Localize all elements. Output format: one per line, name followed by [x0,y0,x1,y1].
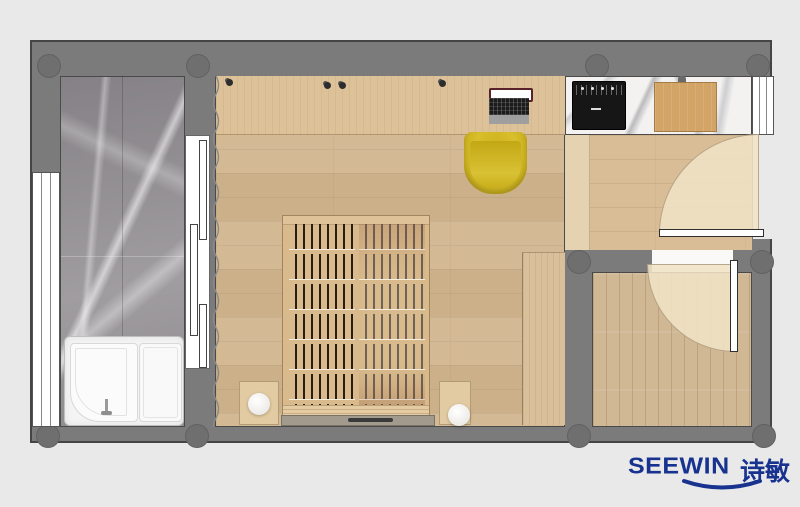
round-lamp-right [448,404,470,426]
wall-column [185,424,209,448]
sliding-door-panel [190,224,198,336]
hook-knob-icon [339,82,346,89]
hook-knob-icon [226,79,233,86]
hook-knob-icon [324,82,331,89]
wall-column [36,424,60,448]
wall-column [567,250,591,274]
laptop-palmrest [489,115,529,124]
wall-column [750,250,774,274]
wall-column [746,54,770,78]
wardrobe [522,252,565,425]
cooktop-dot [611,87,614,90]
shower-tub [64,336,184,426]
wall-column [585,54,609,78]
tub-basin-line [143,347,178,418]
tub-basin [139,343,182,422]
curtain [211,76,221,427]
left-window [32,172,60,427]
wall-column [186,54,210,78]
hallway-light-strip [565,135,590,250]
bed-handle [348,418,393,422]
wall-column [752,424,776,448]
hook-knob-icon [439,80,446,87]
laptop-keyboard [489,98,529,115]
cooktop-dot [581,87,584,90]
induction-cooktop [572,81,626,130]
bed-slats-right [359,224,425,405]
sliding-door-panel [199,140,207,240]
tile-seam [122,76,123,336]
yellow-chair [464,132,527,194]
sliding-door [185,135,210,369]
slatted-bed [282,215,430,424]
cooktop-dash [591,108,601,110]
small-room-door-leaf [730,260,738,352]
floorplan-image: SEEWIN 诗敏 [0,0,800,507]
cooktop-dot [601,87,604,90]
entry-door-leaf [659,229,764,237]
wall-column [37,54,61,78]
chair-seat [470,141,521,187]
round-lamp-left [248,393,270,415]
right-window [752,76,774,135]
seewin-logo: SEEWIN 诗敏 [628,452,798,498]
logo-text-zh: 诗敏 [740,452,790,488]
bed-slats-left [289,224,355,405]
logo-text-en: SEEWIN [628,453,730,480]
faucet-icon [101,411,112,415]
floorplan [30,40,772,443]
wall-column [567,424,591,448]
tub-seat-line [75,348,127,416]
tile-seam [61,256,184,257]
cooktop-dot [591,87,594,90]
cutting-board [654,82,717,132]
sliding-door-panel [199,304,207,368]
laptop [489,88,529,124]
